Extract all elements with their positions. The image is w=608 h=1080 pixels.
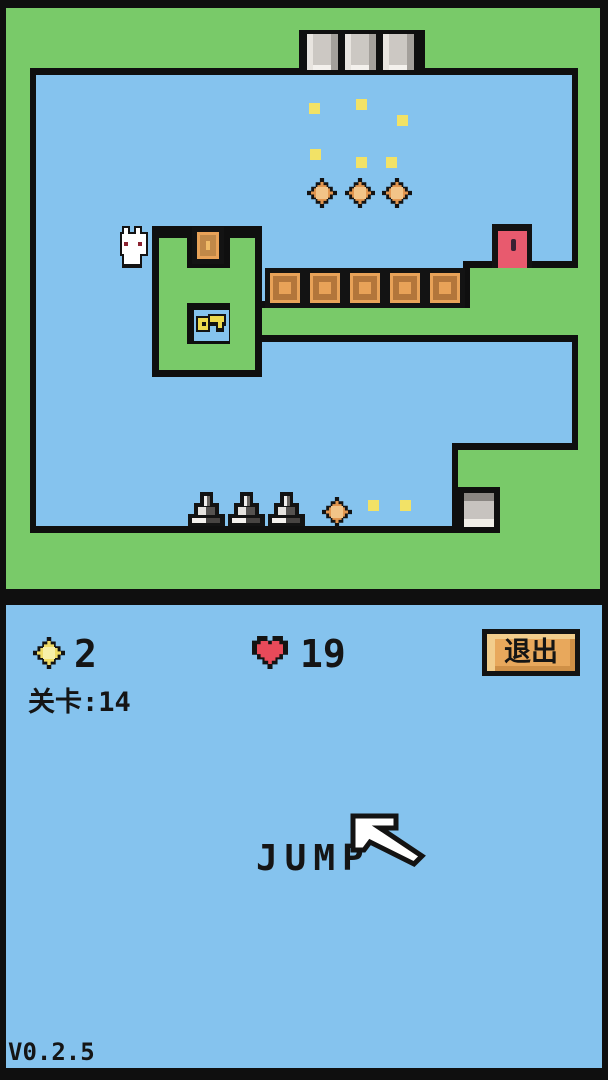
sparkle bbox=[309, 103, 320, 114]
crate bbox=[385, 268, 425, 308]
sparkle bbox=[386, 157, 397, 168]
crate bbox=[192, 227, 224, 264]
exit-button[interactable]: 退出 bbox=[482, 629, 580, 676]
spike-icon bbox=[228, 492, 265, 526]
door-handle bbox=[511, 239, 516, 251]
player-rabbit bbox=[120, 226, 148, 268]
sparkle bbox=[400, 500, 411, 511]
grass-wall bbox=[262, 308, 478, 335]
sparkle bbox=[356, 157, 367, 168]
crate bbox=[265, 268, 305, 308]
cursor-icon bbox=[346, 810, 428, 868]
stone-pillar bbox=[345, 34, 376, 70]
sparkle bbox=[356, 99, 367, 110]
stone-pillar bbox=[307, 34, 338, 70]
grass-wall bbox=[470, 268, 578, 335]
version-label: V0.2.5 bbox=[8, 1038, 95, 1066]
level-label: 关卡:14 bbox=[28, 680, 131, 719]
hud-panel: 2 19 退出 关卡:14 JUMP V0.2.5 bbox=[0, 600, 608, 1080]
sparkle bbox=[310, 149, 321, 160]
grass-wall bbox=[159, 344, 255, 370]
heart-count: 19 bbox=[300, 632, 346, 676]
crate bbox=[345, 268, 385, 308]
key-icon bbox=[196, 312, 226, 334]
spike-icon bbox=[268, 492, 305, 526]
grass-wall bbox=[159, 268, 237, 303]
level-viewport bbox=[0, 0, 608, 600]
stone-pillar bbox=[383, 34, 414, 70]
sparkle bbox=[397, 115, 408, 126]
crate bbox=[305, 268, 345, 308]
coin-count: 2 bbox=[74, 632, 97, 676]
crate bbox=[425, 268, 465, 308]
exit-door bbox=[492, 224, 532, 268]
spike-icon bbox=[188, 492, 225, 526]
stone-block bbox=[464, 493, 494, 527]
sparkle bbox=[368, 500, 379, 511]
